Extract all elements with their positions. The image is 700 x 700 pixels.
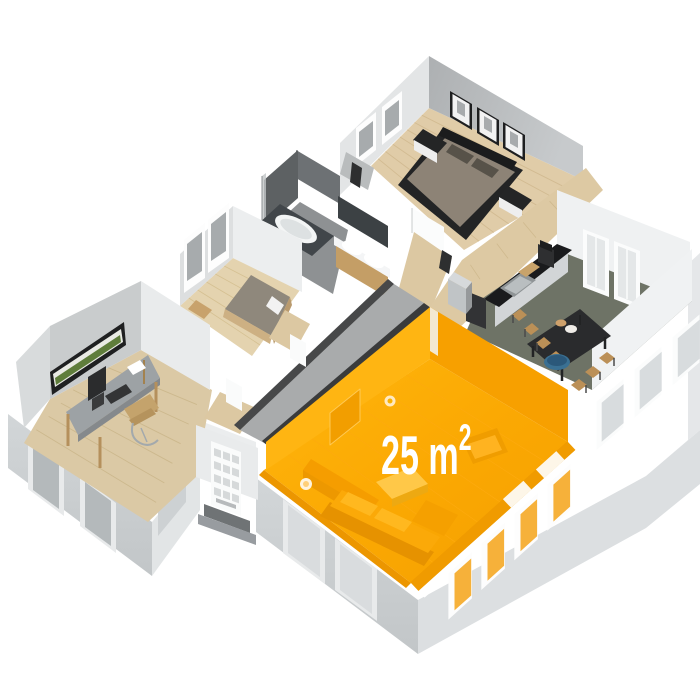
svg-text:25 m2: 25 m2 bbox=[381, 416, 471, 486]
